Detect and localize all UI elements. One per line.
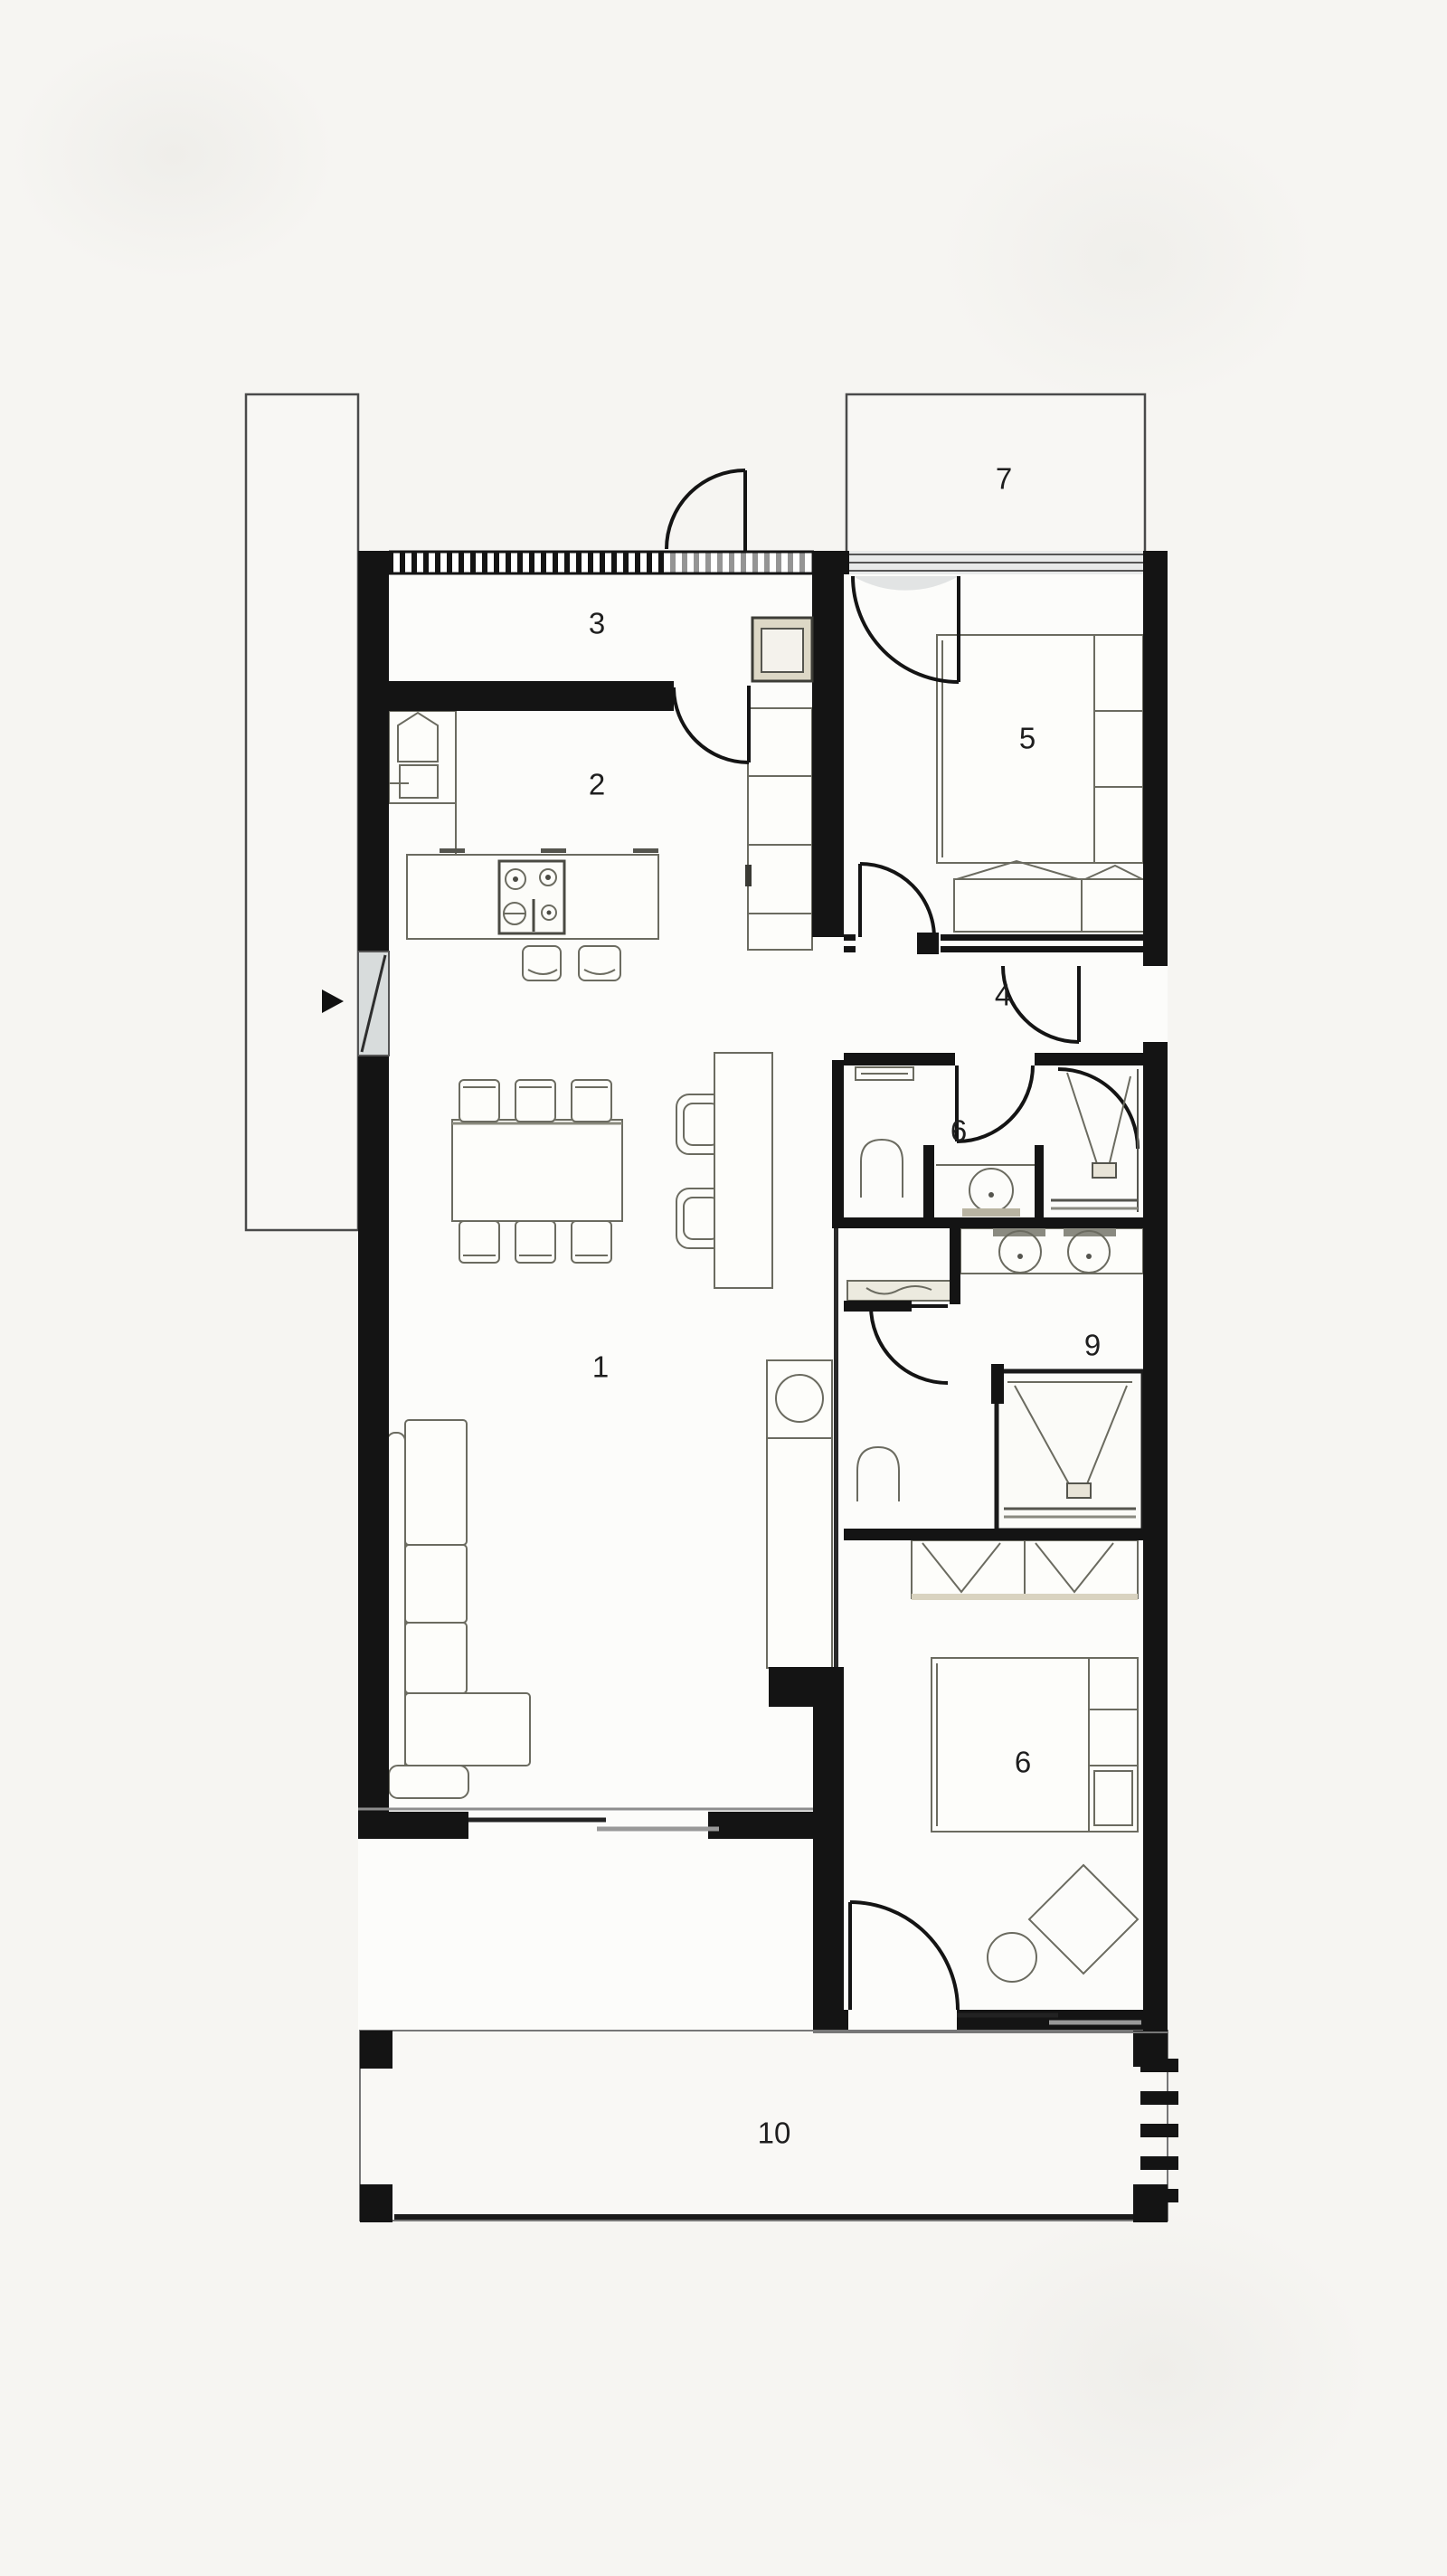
shaft-box (752, 618, 812, 681)
window-left-wall (358, 952, 389, 1056)
floor-plan-drawing: 1 2 3 4 5 6 7 9 6 10 (0, 0, 1447, 2576)
hatched-entry-wall (389, 551, 814, 574)
bed-bottom-bedroom (932, 1658, 1138, 1832)
label-shower-room: 9 (1084, 1329, 1101, 1362)
label-bedroom-top: 5 (1019, 722, 1036, 755)
dining-table (452, 1120, 622, 1221)
cooktop-icon (499, 861, 564, 933)
carport-outline (246, 394, 358, 1230)
wardrobe-bottom-bedroom (912, 1540, 1138, 1600)
label-living: 1 (592, 1350, 609, 1384)
bedroom-facade (813, 2010, 1168, 2032)
entry-door (667, 470, 745, 551)
console-sideboard (714, 1053, 772, 1288)
shower-9 (991, 1364, 1143, 1530)
label-bedroom-bottom: 6 (1015, 1746, 1031, 1779)
floor-plan-page: 1 2 3 4 5 6 7 9 6 10 (0, 0, 1447, 2576)
label-bathroom: 6 (950, 1114, 967, 1148)
label-balcony: 7 (996, 462, 1012, 496)
label-kitchen: 2 (589, 768, 605, 801)
kitchen-island (407, 848, 658, 939)
bed-top-bedroom (937, 635, 1143, 863)
label-terrace: 10 (758, 2117, 791, 2150)
corridor-counter-with-sink (767, 1360, 832, 1668)
label-entry: 3 (589, 607, 605, 640)
lobby-bench (847, 1281, 950, 1301)
double-basin-vanity (960, 1228, 1143, 1274)
glazed-band-bedroom-top (846, 551, 1143, 574)
pantry-cabinets (745, 708, 812, 950)
label-hall: 4 (995, 979, 1011, 1012)
